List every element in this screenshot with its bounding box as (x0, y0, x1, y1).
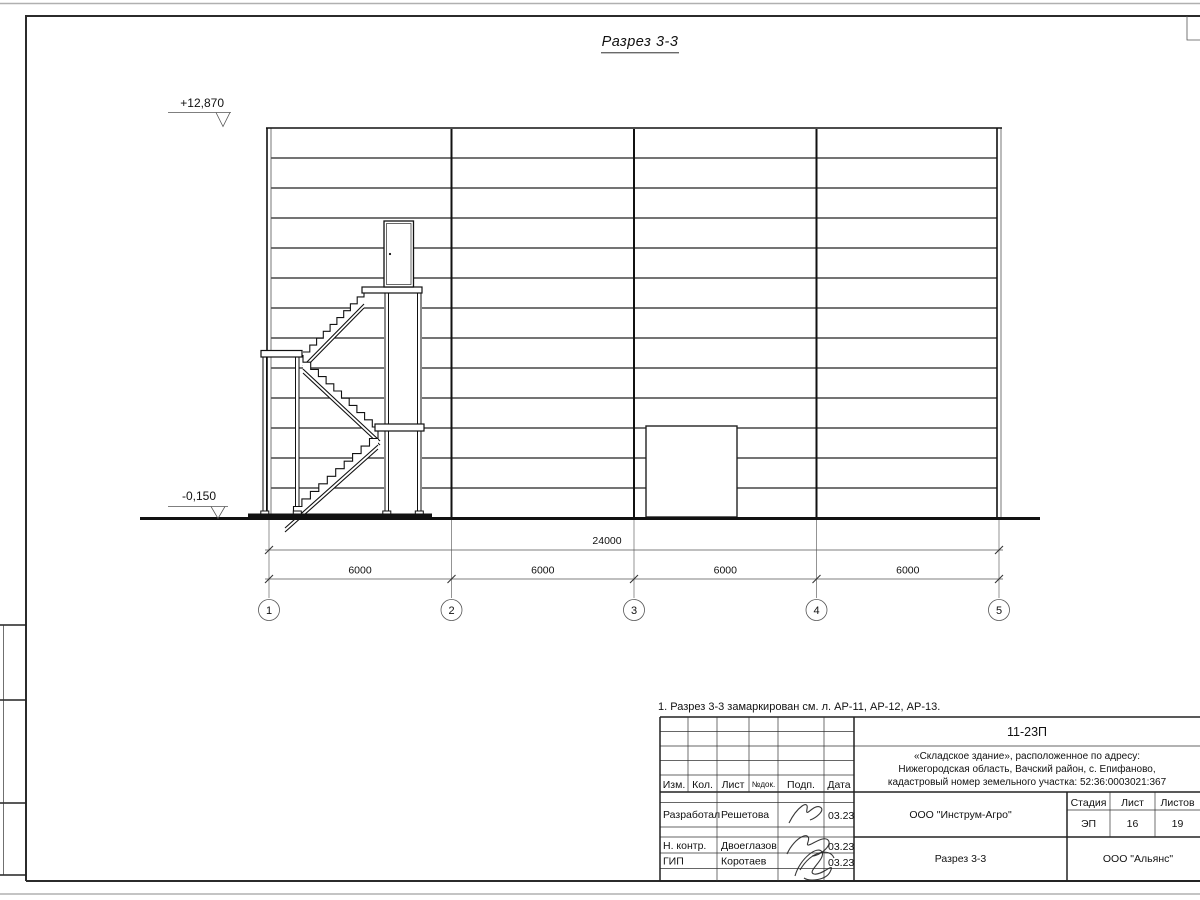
drawing-sheet: Разрез 3-3 +12,870 (0, 0, 1200, 900)
sheet-number: 16 (1127, 818, 1139, 830)
door-handle-icon (389, 253, 391, 255)
row-role-gip: ГИП (663, 856, 684, 868)
stair-door (384, 221, 414, 287)
col-kol: Кол. (692, 779, 713, 791)
axis-bubble-1: 1 (266, 605, 272, 617)
dim-span-3: 6000 (714, 565, 738, 577)
ground (140, 514, 1040, 519)
corner-format-box (1187, 16, 1200, 40)
external-staircase (261, 287, 424, 532)
col-podp: Подп. (787, 779, 815, 791)
drawing-name: Разрез 3-3 (935, 853, 987, 865)
dim-span-2: 6000 (531, 565, 555, 577)
view-title: Разрез 3-3 (601, 34, 679, 53)
drawing-note: 1. Разрез 3-3 замаркирован см. л. АР-11,… (658, 701, 940, 713)
col-izm: Изм. (663, 779, 686, 791)
row-role-ncontrol: Н. контр. (663, 840, 706, 852)
gate-opening (646, 426, 737, 517)
contractor-org: ООО "Альянс" (1103, 853, 1173, 865)
col-doc-no: №док. (752, 780, 775, 789)
axis-bubble-5: 5 (996, 605, 1002, 617)
sheets-total: 19 (1172, 818, 1184, 830)
col-list: Лист (722, 779, 745, 791)
project-address-line3: кадастровый номер земельного участка: 52… (888, 777, 1167, 788)
sheet-label: Лист (1121, 797, 1144, 809)
row-name-gip: Коротаев (721, 856, 767, 868)
level-arrow-icon (211, 507, 225, 519)
axis-bubble-2: 2 (448, 605, 454, 617)
axis-bubbles: 1 2 3 4 5 (259, 600, 1010, 621)
project-address-line2: Нижегородская область, Вачский район, с.… (898, 763, 1155, 775)
elevation-top-value: +12,870 (180, 96, 224, 110)
stage-label: Стадия (1071, 797, 1107, 809)
elevation-bottom-value: -0,150 (182, 489, 216, 503)
view-title-text: Разрез 3-3 (602, 34, 679, 50)
row-name-developer: Решетова (721, 809, 769, 821)
project-address-line1: «Складское здание», расположенное по адр… (914, 751, 1140, 762)
stage-value: ЭП (1081, 818, 1096, 830)
extension-lines (269, 520, 999, 598)
dim-span-1: 6000 (348, 565, 372, 577)
dim-total-value: 24000 (592, 535, 621, 547)
row-date-gip: 03.23 (828, 857, 854, 869)
elevation-mark-bottom: -0,150 (168, 489, 228, 519)
left-margin-stamp (0, 625, 26, 875)
axis-bubble-4: 4 (813, 605, 819, 617)
dim-span-4: 6000 (896, 565, 920, 577)
row-role-developer: Разработал (663, 809, 720, 821)
elevation-mark-top: +12,870 (168, 96, 231, 127)
row-name-ncontrol: Двоеглазов (721, 840, 777, 852)
title-block: Изм. Кол. Лист №док. Подп. Дата Разработ… (660, 717, 1200, 881)
structural-columns (452, 129, 817, 517)
doc-number: 11-23П (1007, 725, 1047, 739)
developer-org: ООО "Инструм-Агро" (909, 809, 1012, 821)
dimensions: 24000 6000 6000 6000 6000 1 2 3 4 5 (259, 520, 1010, 621)
section-3-3-sheet: Разрез 3-3 +12,870 (0, 0, 1200, 900)
building-section (140, 128, 1040, 532)
col-data: Дата (827, 779, 850, 791)
row-date-developer: 03.23 (828, 810, 854, 822)
level-arrow-icon (216, 113, 230, 127)
axis-bubble-3: 3 (631, 605, 637, 617)
sheets-label: Листов (1160, 797, 1195, 809)
row-date-ncontrol: 03.23 (828, 841, 854, 853)
